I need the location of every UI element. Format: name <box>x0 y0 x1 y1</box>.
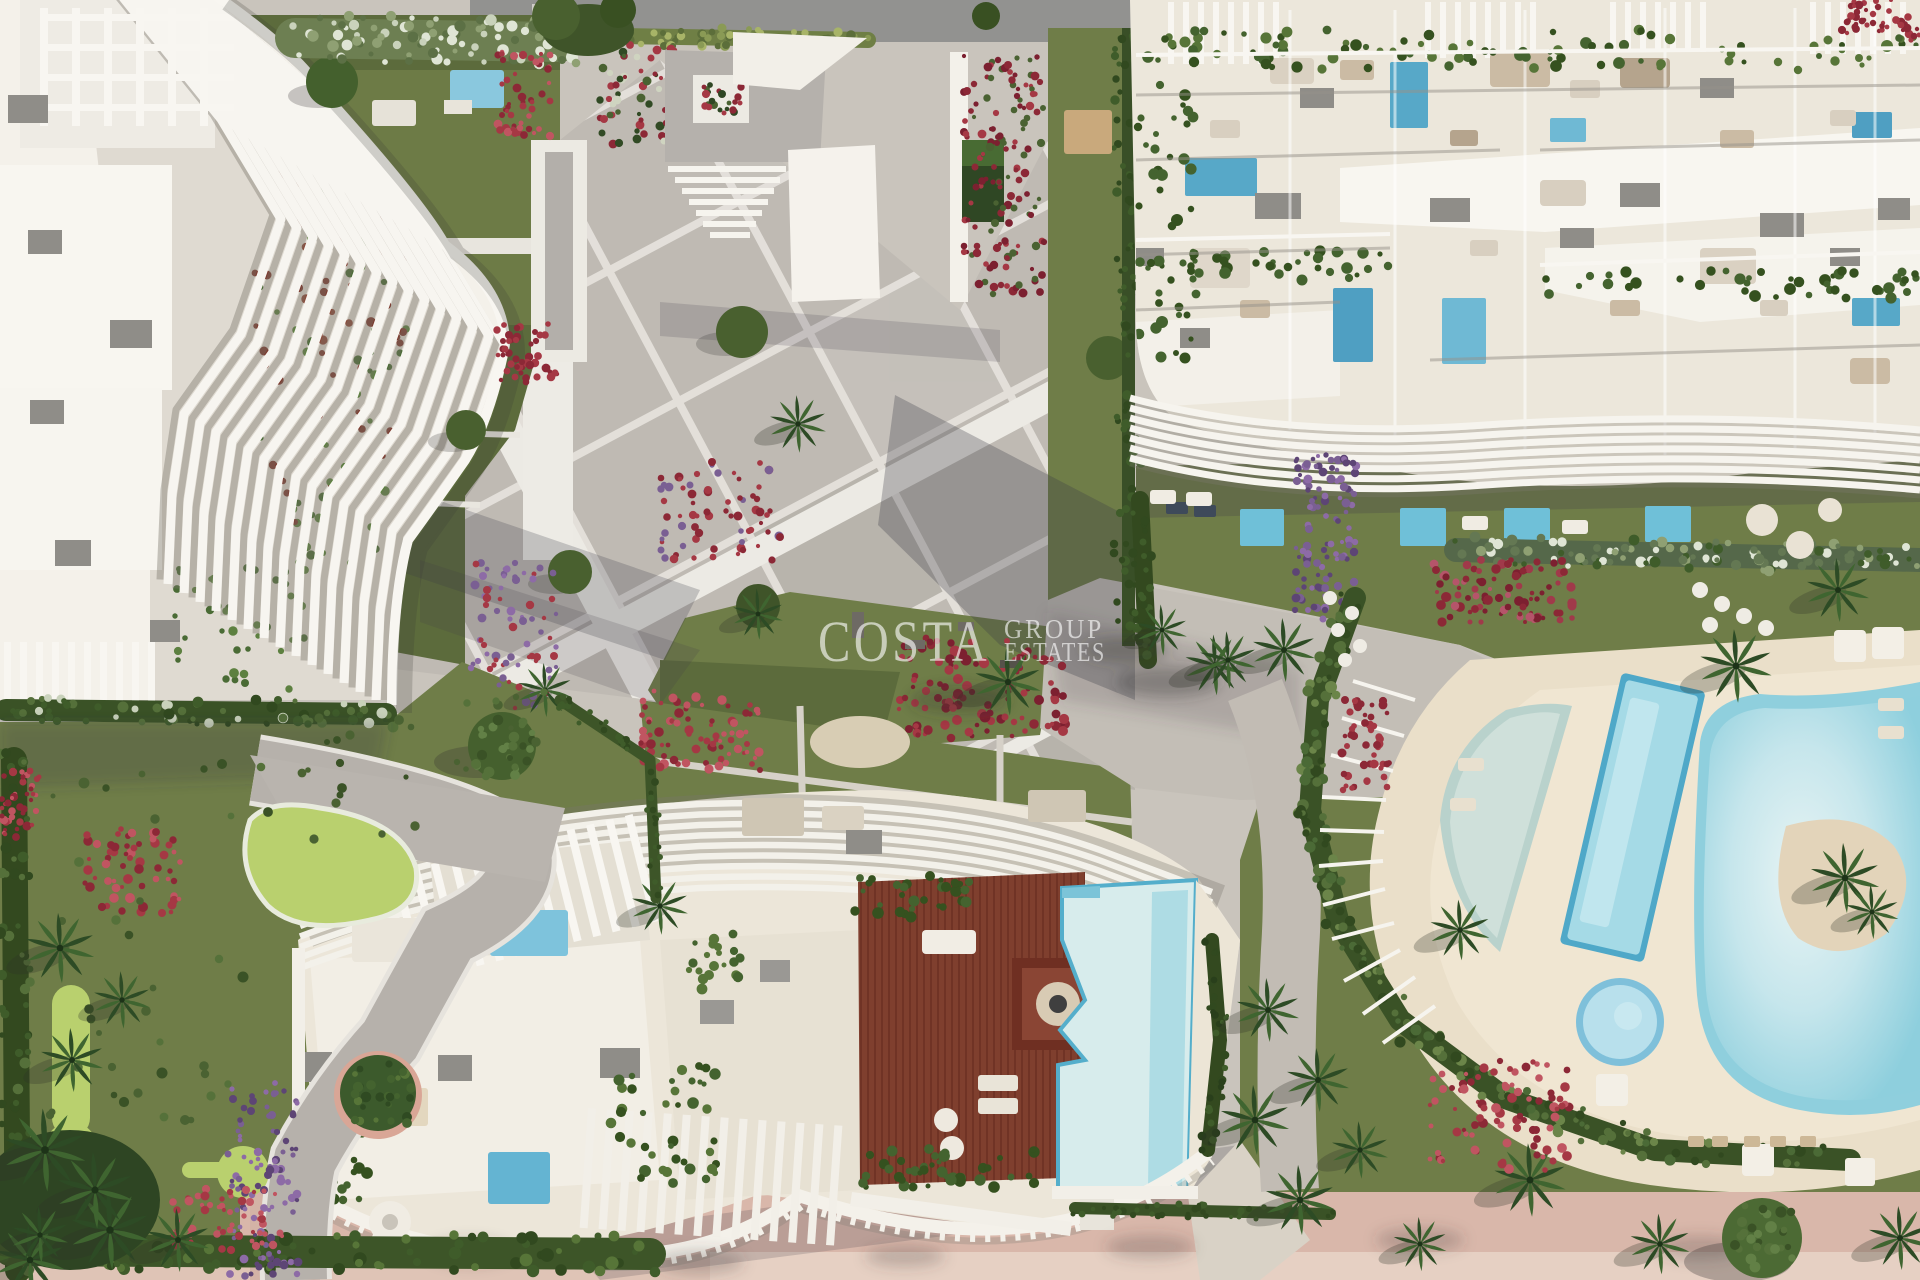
svg-text:COSTA: COSTA <box>818 609 990 674</box>
svg-text:ESTATES: ESTATES <box>1004 637 1106 667</box>
